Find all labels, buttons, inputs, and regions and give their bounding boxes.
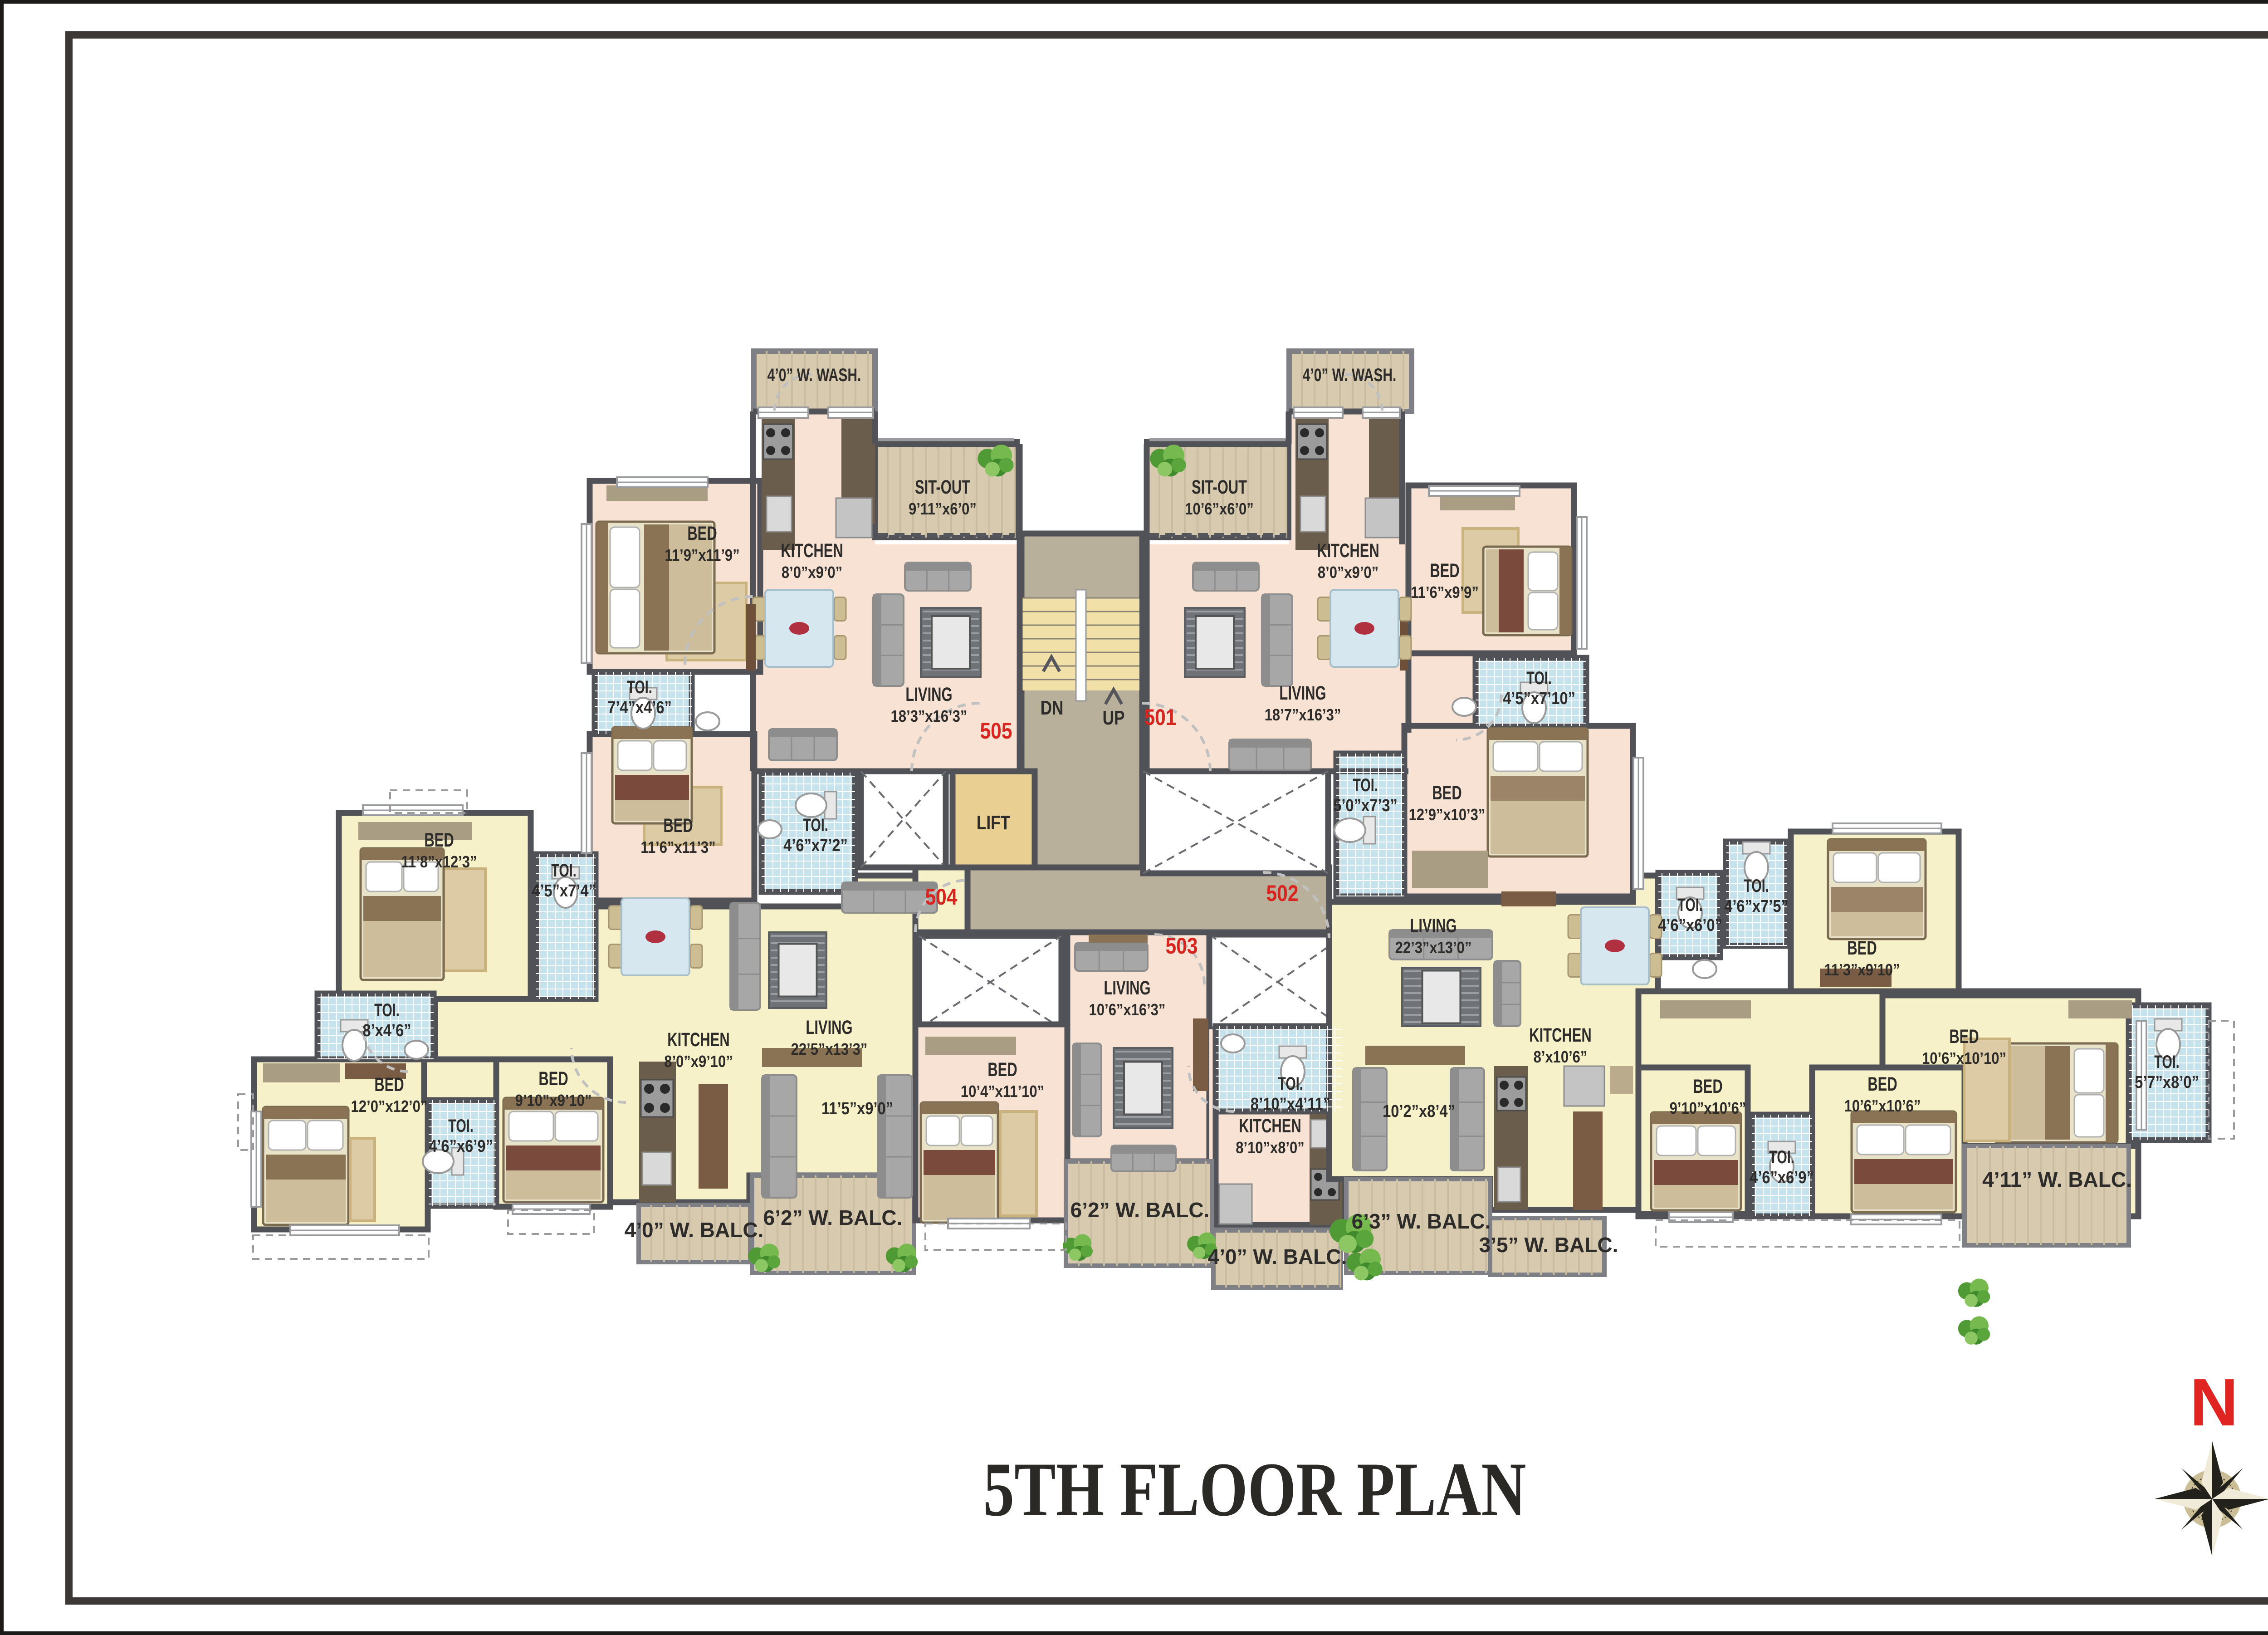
svg-text:505: 505 xyxy=(980,718,1012,744)
svg-text:10’4”x11’10”: 10’4”x11’10” xyxy=(961,1083,1044,1101)
svg-text:11’6”x9’9”: 11’6”x9’9” xyxy=(1411,584,1479,602)
svg-text:18’3”x16’3”: 18’3”x16’3” xyxy=(891,708,968,726)
svg-text:BED: BED xyxy=(663,814,693,836)
svg-text:6’2” W. BALC.: 6’2” W. BALC. xyxy=(1070,1198,1210,1222)
svg-text:4’5”x7’10”: 4’5”x7’10” xyxy=(1503,689,1575,708)
svg-text:BED: BED xyxy=(424,829,454,851)
svg-text:TOI.: TOI. xyxy=(803,815,828,835)
svg-text:4’6”x7’5”: 4’6”x7’5” xyxy=(1724,896,1789,916)
svg-text:4’0” W. BALC.: 4’0” W. BALC. xyxy=(1208,1245,1347,1268)
svg-text:8’10”x8’0”: 8’10”x8’0” xyxy=(1236,1139,1304,1157)
svg-text:3’5” W. BALC.: 3’5” W. BALC. xyxy=(1479,1233,1618,1257)
svg-text:SIT-OUT: SIT-OUT xyxy=(915,476,970,498)
svg-text:LIVING: LIVING xyxy=(1279,682,1326,704)
svg-text:KITCHEN: KITCHEN xyxy=(1529,1024,1592,1046)
svg-text:12’9”x10’3”: 12’9”x10’3” xyxy=(1409,806,1486,824)
svg-text:12’0”x12’0”: 12’0”x12’0” xyxy=(351,1098,428,1116)
svg-text:LIVING: LIVING xyxy=(1104,977,1150,999)
svg-text:8’10”x4’11”: 8’10”x4’11” xyxy=(1251,1094,1330,1114)
svg-text:SIT-OUT: SIT-OUT xyxy=(1192,476,1247,498)
svg-text:LIVING: LIVING xyxy=(905,683,952,705)
svg-text:8’x4’6”: 8’x4’6” xyxy=(362,1021,411,1040)
svg-text:4’0” W. WASH.: 4’0” W. WASH. xyxy=(767,365,861,385)
svg-text:KITCHEN: KITCHEN xyxy=(667,1028,730,1050)
svg-text:11’9”x11’9”: 11’9”x11’9” xyxy=(665,547,739,565)
svg-text:BED: BED xyxy=(1949,1025,1979,1047)
svg-text:4’6”x6’0”: 4’6”x6’0” xyxy=(1658,915,1722,935)
svg-text:11’8”x12’3”: 11’8”x12’3” xyxy=(401,853,477,871)
svg-text:BED: BED xyxy=(374,1073,404,1095)
svg-text:TOI.: TOI. xyxy=(374,1000,399,1020)
svg-text:BED: BED xyxy=(1867,1073,1897,1095)
svg-text:TOI.: TOI. xyxy=(1526,668,1551,688)
svg-text:BED: BED xyxy=(1847,937,1877,959)
svg-text:10’2”x8’4”: 10’2”x8’4” xyxy=(1383,1101,1455,1121)
svg-text:TOI.: TOI. xyxy=(1744,876,1769,896)
svg-text:10’6”x10’10”: 10’6”x10’10” xyxy=(1922,1050,2006,1068)
svg-text:8’0”x9’0”: 8’0”x9’0” xyxy=(782,564,842,582)
svg-text:5’0”x7’3”: 5’0”x7’3” xyxy=(1333,796,1398,815)
svg-text:LIVING: LIVING xyxy=(806,1016,852,1038)
svg-text:4’6”x6’9”: 4’6”x6’9” xyxy=(1750,1168,1814,1187)
svg-text:TOI.: TOI. xyxy=(551,860,576,881)
svg-text:4’0” W. WASH.: 4’0” W. WASH. xyxy=(1303,365,1397,385)
svg-text:503: 503 xyxy=(1166,933,1198,959)
svg-text:502: 502 xyxy=(1266,881,1299,906)
svg-text:TOI.: TOI. xyxy=(2154,1052,2179,1072)
svg-text:4’5”x7’4”: 4’5”x7’4” xyxy=(532,881,596,901)
svg-text:N: N xyxy=(2190,1365,2239,1440)
svg-text:504: 504 xyxy=(925,884,958,910)
svg-text:TOI.: TOI. xyxy=(448,1116,473,1136)
svg-text:TOI.: TOI. xyxy=(1677,895,1702,915)
svg-text:10’6”x10’6”: 10’6”x10’6” xyxy=(1844,1097,1921,1116)
svg-text:DN: DN xyxy=(1041,697,1064,719)
svg-text:TOI.: TOI. xyxy=(627,677,652,697)
svg-text:BED: BED xyxy=(1693,1075,1722,1097)
svg-text:BED: BED xyxy=(1432,782,1461,803)
svg-text:BED: BED xyxy=(1430,559,1459,581)
svg-text:KITCHEN: KITCHEN xyxy=(1317,539,1379,561)
svg-text:10’6”x16’3”: 10’6”x16’3” xyxy=(1089,1001,1166,1019)
svg-text:8’0”x9’0”: 8’0”x9’0” xyxy=(1318,564,1378,582)
svg-text:9’10”x9’10”: 9’10”x9’10” xyxy=(515,1092,592,1110)
svg-text:LIFT: LIFT xyxy=(977,812,1010,834)
svg-text:501: 501 xyxy=(1144,705,1177,730)
svg-text:5’7”x8’0”: 5’7”x8’0” xyxy=(2135,1072,2199,1092)
svg-text:5TH FLOOR PLAN: 5TH FLOOR PLAN xyxy=(983,1447,1526,1532)
svg-text:4’6”x7’2”: 4’6”x7’2” xyxy=(783,836,848,855)
svg-text:BED: BED xyxy=(987,1058,1017,1080)
svg-text:BED: BED xyxy=(687,522,717,544)
svg-text:BED: BED xyxy=(538,1067,568,1089)
svg-text:4’11” W. BALC.: 4’11” W. BALC. xyxy=(1982,1168,2132,1191)
svg-text:11’6”x11’3”: 11’6”x11’3” xyxy=(640,839,715,857)
svg-text:8’x10’6”: 8’x10’6” xyxy=(1534,1048,1588,1067)
svg-text:22’3”x13’0”: 22’3”x13’0” xyxy=(1395,939,1472,957)
svg-text:18’7”x16’3”: 18’7”x16’3” xyxy=(1265,706,1341,724)
svg-text:TOI.: TOI. xyxy=(1278,1073,1303,1094)
svg-text:UP: UP xyxy=(1103,707,1125,729)
svg-text:6’3” W. BALC.: 6’3” W. BALC. xyxy=(1352,1209,1491,1233)
svg-text:6’2” W. BALC.: 6’2” W. BALC. xyxy=(763,1206,903,1229)
svg-text:10’6”x6’0”: 10’6”x6’0” xyxy=(1185,500,1253,519)
svg-text:22’5”x13’3”: 22’5”x13’3” xyxy=(791,1041,868,1059)
svg-text:KITCHEN: KITCHEN xyxy=(781,539,843,561)
svg-text:11’3”x9’10”: 11’3”x9’10” xyxy=(1824,961,1900,979)
svg-text:TOI.: TOI. xyxy=(1353,775,1378,795)
svg-text:TOI.: TOI. xyxy=(1769,1147,1794,1167)
svg-text:KITCHEN: KITCHEN xyxy=(1239,1115,1301,1136)
svg-text:9’10”x10’6”: 9’10”x10’6” xyxy=(1670,1100,1746,1118)
svg-text:8’0”x9’10”: 8’0”x9’10” xyxy=(664,1053,733,1071)
svg-text:7’4”x4’6”: 7’4”x4’6” xyxy=(607,698,672,717)
svg-text:9’11”x6’0”: 9’11”x6’0” xyxy=(909,500,977,519)
svg-text:4’6”x6’9”: 4’6”x6’9” xyxy=(429,1136,493,1156)
svg-text:LIVING: LIVING xyxy=(1410,915,1457,936)
svg-text:4’0” W. BALC.: 4’0” W. BALC. xyxy=(625,1218,764,1242)
svg-text:11’5”x9’0”: 11’5”x9’0” xyxy=(821,1099,893,1118)
